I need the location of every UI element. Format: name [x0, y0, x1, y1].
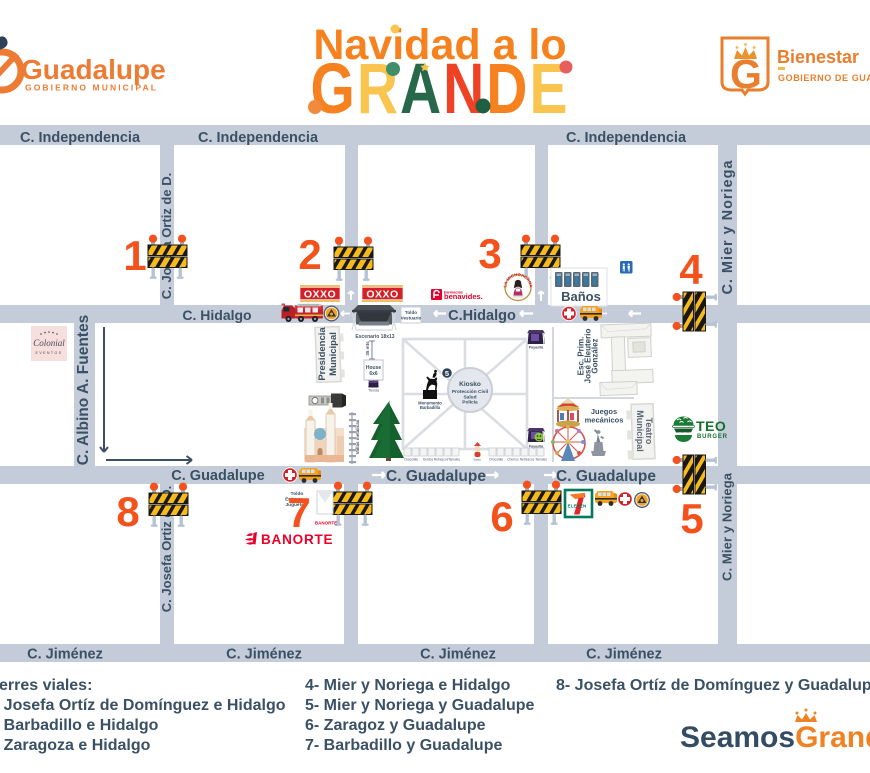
svg-text:GOBIERNO DE GUADALUPE: GOBIERNO DE GUADALUPE — [778, 73, 870, 83]
svg-text:Duritos: Duritos — [423, 458, 434, 462]
svg-text:mecánicos: mecánicos — [585, 416, 624, 425]
svg-text:Barbadilla: Barbadilla — [420, 405, 441, 410]
svg-text:3- Zaragoza e Hidalgo: 3- Zaragoza e Hidalgo — [0, 737, 151, 754]
svg-text:Bienestar: Bienestar — [777, 47, 859, 67]
svg-text:Toldo: Toldo — [405, 310, 417, 315]
svg-text:Colonial: Colonial — [33, 338, 65, 348]
svg-text:Vallas metalicas: Vallas metalicas — [355, 419, 360, 454]
svg-text:C. Josefa Ortiz de D.: C. Josefa Ortiz de D. — [159, 173, 174, 299]
svg-text:EVENTOS: EVENTOS — [36, 351, 63, 355]
svg-text:3: 3 — [478, 230, 501, 277]
svg-text:8- Josefa Ortíz de Domínguez y: 8- Josefa Ortíz de Domínguez y Guadalupe — [556, 677, 870, 694]
svg-text:8: 8 — [116, 488, 139, 535]
svg-text:4- Mier y Noriega e Hidalgo: 4- Mier y Noriega e Hidalgo — [305, 677, 511, 694]
svg-text:González: González — [591, 338, 600, 373]
svg-text:C. Guadalupe: C. Guadalupe — [556, 468, 656, 485]
svg-text:Refrescos: Refrescos — [520, 458, 535, 462]
svg-text:Guadalupe: Guadalupe — [21, 54, 166, 85]
svg-text:C. Jiménez: C. Jiménez — [27, 647, 103, 663]
svg-text:Policía: Policía — [462, 400, 478, 406]
svg-text:Chocolate: Chocolate — [404, 458, 419, 462]
svg-text:7: 7 — [287, 489, 310, 536]
svg-text:C. Jiménez: C. Jiménez — [226, 647, 302, 663]
svg-text:Payasita: Payasita — [529, 445, 545, 449]
svg-text:6x6: 6x6 — [369, 371, 378, 377]
svg-text:2: 2 — [298, 231, 321, 278]
svg-text:Refrescos: Refrescos — [434, 458, 449, 462]
svg-text:C. Guadalupe: C. Guadalupe — [171, 468, 264, 484]
svg-text:C.Hidalgo: C.Hidalgo — [448, 308, 516, 324]
svg-text:OXXO: OXXO — [304, 289, 336, 301]
svg-text:Teatro: Teatro — [644, 418, 654, 445]
svg-text:C. Independencia: C. Independencia — [20, 130, 141, 146]
svg-text:Protección Civil: Protección Civil — [452, 389, 488, 395]
svg-text:C. Independencia: C. Independencia — [198, 130, 319, 146]
svg-text:Kiosko: Kiosko — [459, 381, 481, 388]
svg-text:BANORTE: BANORTE — [261, 532, 333, 547]
svg-text:ELEVEN: ELEVEN — [568, 504, 587, 509]
svg-text:GOBIERNO MUNICIPAL: GOBIERNO MUNICIPAL — [25, 83, 158, 93]
svg-text:5: 5 — [680, 495, 703, 542]
svg-text:GRANDE: GRANDE — [311, 48, 570, 129]
svg-text:Escenario 18x13: Escenario 18x13 — [355, 334, 394, 340]
svg-text:C. Mier y Noriega: C. Mier y Noriega — [720, 472, 735, 581]
svg-text:BURGER: BURGER — [697, 434, 728, 440]
svg-text:Payasita: Payasita — [529, 346, 545, 350]
svg-text:Santa: Santa — [473, 458, 481, 462]
svg-text:1: 1 — [123, 232, 146, 279]
svg-text:C. Albino A. Fuentes: C. Albino A. Fuentes — [75, 315, 92, 465]
svg-text:35 mts: 35 mts — [365, 341, 370, 356]
svg-text:C. Guadalupe: C. Guadalupe — [386, 468, 486, 485]
svg-text:7- Barbadillo y Guadalupe: 7- Barbadillo y Guadalupe — [305, 737, 502, 754]
svg-text:C. Hidalgo: C. Hidalgo — [182, 307, 251, 323]
svg-text:5- Mier y Noriega y Guadalupe: 5- Mier y Noriega y Guadalupe — [305, 697, 535, 714]
svg-text:4: 4 — [679, 246, 703, 293]
svg-text:2- Barbadillo e Hidalgo: 2- Barbadillo e Hidalgo — [0, 717, 159, 734]
svg-text:Tamales: Tamales — [535, 458, 547, 462]
svg-text:SeamosGrande: SeamosGrande — [680, 721, 870, 754]
svg-text:OXXO: OXXO — [366, 289, 398, 301]
svg-text:Churros: Churros — [507, 458, 519, 462]
svg-text:5: 5 — [445, 369, 449, 378]
svg-text:benavides.: benavides. — [444, 292, 483, 301]
svg-text:C. Independencia: C. Independencia — [566, 130, 687, 146]
svg-text:Tienda: Tienda — [368, 389, 379, 393]
svg-text:6- Zaragoz y Guadalupe: 6- Zaragoz y Guadalupe — [305, 717, 486, 734]
svg-text:Tamales: Tamales — [448, 458, 460, 462]
svg-text:C. Jiménez: C. Jiménez — [586, 647, 662, 663]
svg-text:G: G — [730, 51, 762, 97]
svg-text:C. Jiménez: C. Jiménez — [420, 647, 496, 663]
svg-text:Vestuario: Vestuario — [401, 316, 422, 321]
svg-text:Baños: Baños — [561, 289, 601, 304]
svg-text:C. Mier y Noriega: C. Mier y Noriega — [720, 160, 736, 295]
svg-text:TEO: TEO — [696, 418, 726, 434]
svg-text:Chocolate: Chocolate — [489, 458, 504, 462]
svg-text:1- Josefa Ortíz de Domínguez e: 1- Josefa Ortíz de Domínguez e Hidalgo — [0, 697, 286, 714]
svg-text:Municipal: Municipal — [328, 332, 339, 376]
svg-text:6: 6 — [490, 493, 513, 540]
svg-text:BANORTE: BANORTE — [315, 521, 337, 526]
svg-text:Presidencia: Presidencia — [317, 327, 328, 381]
svg-text:Cierres viales:: Cierres viales: — [0, 677, 92, 694]
svg-text:Municipal: Municipal — [635, 410, 645, 452]
